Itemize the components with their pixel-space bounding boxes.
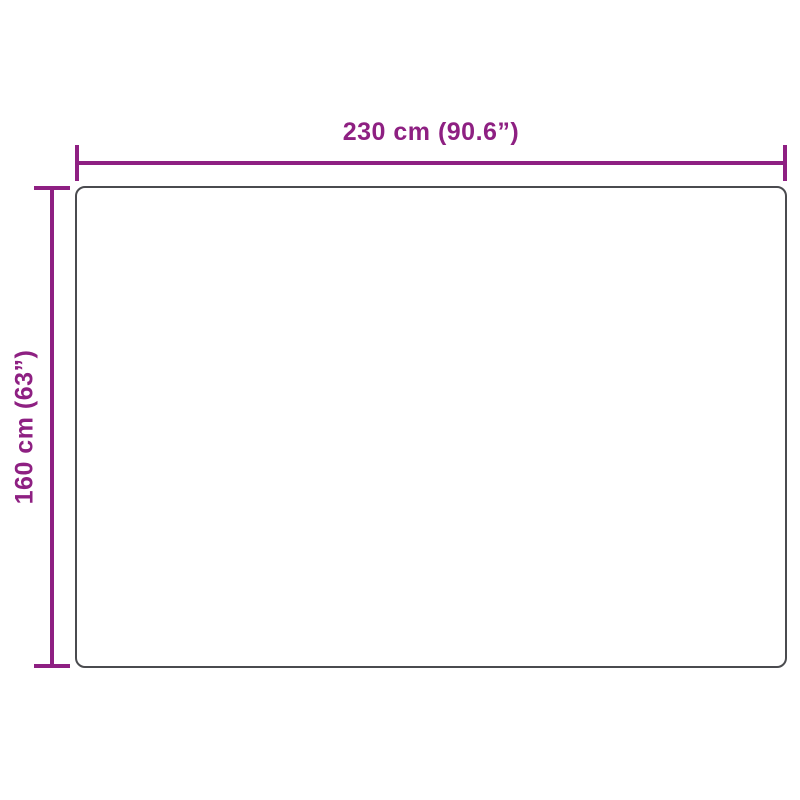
dimension-diagram: 230 cm (90.6”) 160 cm (63”): [0, 0, 800, 800]
width-dimension-start-tick: [75, 145, 79, 181]
width-dimension-label: 230 cm (90.6”): [75, 118, 787, 147]
height-dimension-top-tick: [34, 186, 70, 190]
height-dimension-bottom-tick: [34, 664, 70, 668]
product-outline: [75, 186, 787, 668]
width-dimension-end-tick: [783, 145, 787, 181]
height-dimension-line: [50, 186, 54, 668]
width-dimension-line: [75, 161, 787, 165]
height-dimension-label: 160 cm (63”): [11, 350, 40, 505]
